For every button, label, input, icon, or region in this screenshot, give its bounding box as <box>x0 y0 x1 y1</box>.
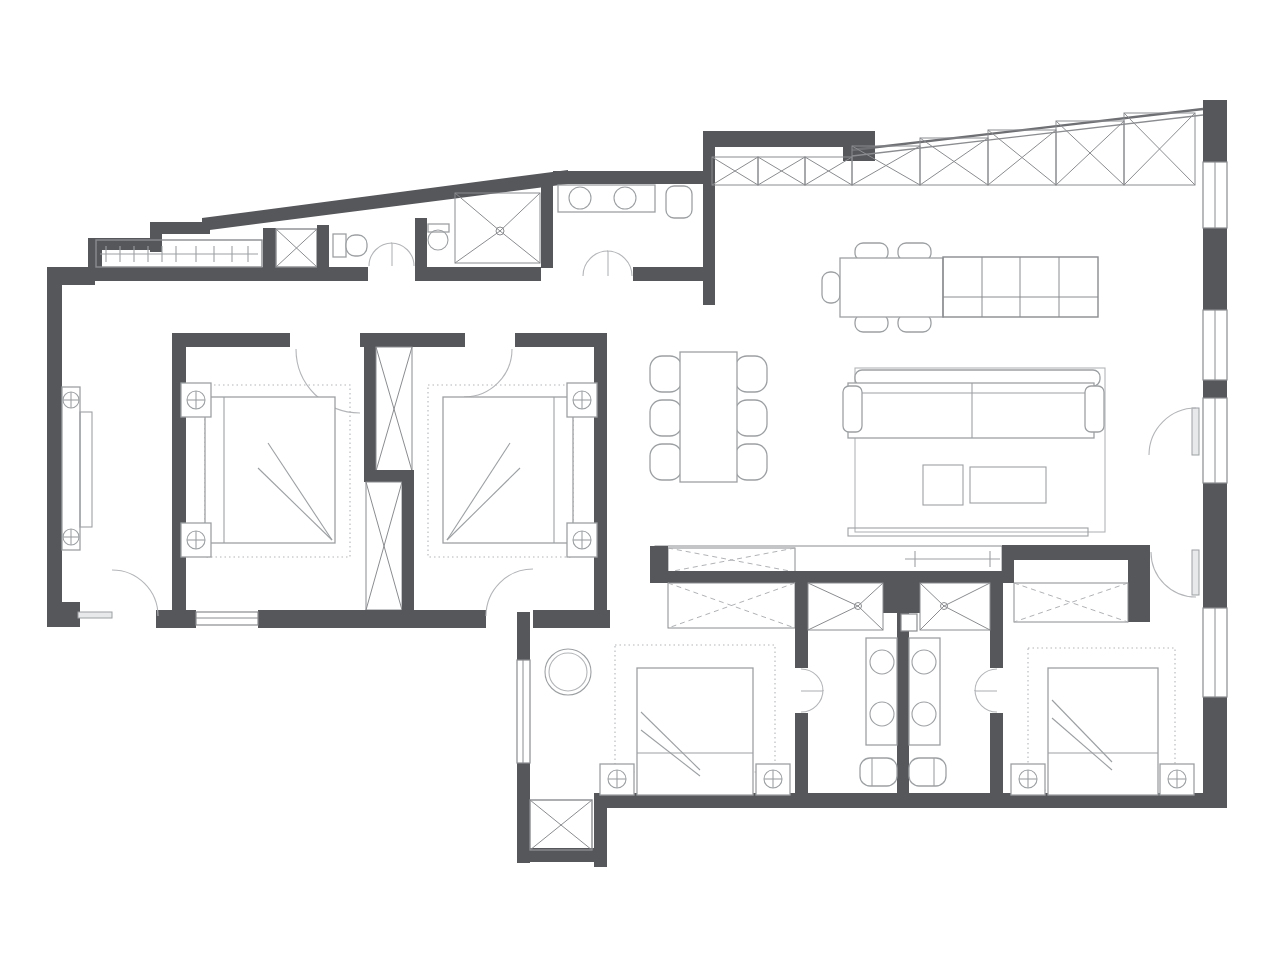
blb-nightstand-left <box>600 764 634 795</box>
dining-set <box>650 352 767 482</box>
sofa-arm-right <box>1085 386 1104 432</box>
center-niche <box>901 614 917 631</box>
wall-topbath-east <box>703 131 715 273</box>
pier-right-4 <box>1203 483 1227 608</box>
sideboard-lamp-bottom <box>63 529 79 545</box>
wall-shower-east <box>541 178 553 268</box>
millwork-wardrobe-cell <box>668 548 795 572</box>
wardrobe-lower <box>366 482 402 610</box>
pier-right-5 <box>1203 697 1227 808</box>
wall-brbr-jamb <box>1128 545 1150 622</box>
sofa-arm-left <box>843 386 862 432</box>
door-arc-bedroom-2 <box>464 349 512 397</box>
shower-room <box>428 193 540 263</box>
blb-bed <box>637 668 753 795</box>
dining-chairs-right <box>735 356 767 480</box>
window-right-4 <box>1203 608 1227 697</box>
sofa <box>843 370 1104 438</box>
window-right-1 <box>1203 162 1227 228</box>
wall-sloped-right-inner <box>852 115 1203 156</box>
kitchen-island-group <box>822 243 1098 332</box>
vanity-left <box>866 638 897 745</box>
wc-toilet-bowl <box>346 235 367 256</box>
b1-nightstand-bottom <box>181 523 211 557</box>
coffee-table-small <box>923 465 963 505</box>
blb-nightstand-right <box>756 764 790 795</box>
window-right-2 <box>1203 310 1227 380</box>
wall-corridor-join <box>1002 545 1014 583</box>
pier-sw-corner <box>47 602 80 627</box>
shower-left <box>808 583 883 630</box>
wc-toilet-tank <box>333 234 346 257</box>
bathrooms-bottom <box>795 580 1003 794</box>
basin-shelf <box>428 224 449 232</box>
vanity-counter <box>558 185 655 212</box>
wall-b2-north-b <box>515 333 607 347</box>
wall-b1-north <box>172 333 290 347</box>
wall-wc-bottom <box>330 610 415 628</box>
wall-center-divider <box>897 613 909 794</box>
dining-table <box>680 352 737 482</box>
wall-blbr-west-top <box>517 612 530 660</box>
bedroom-bottom-right <box>1011 648 1194 795</box>
wall-bathL-west-top <box>795 583 808 668</box>
wc-double-door <box>369 243 414 266</box>
window-right-3 <box>1203 398 1227 483</box>
wall-b2-east <box>594 333 607 628</box>
shower-right <box>920 583 990 630</box>
bedroom-1 <box>172 333 360 627</box>
wall-wc-left <box>364 345 376 477</box>
round-armchair <box>545 649 591 695</box>
wall-entry-south-b <box>415 267 541 281</box>
pier-ne-corner <box>1203 100 1227 162</box>
door-arc-bottom-left-bedroom <box>486 569 533 616</box>
dining-chairs-left <box>650 356 682 480</box>
window-bottom-left-bedroom <box>517 660 530 763</box>
wall-wc-east <box>415 218 427 268</box>
brb-bed <box>1048 668 1158 795</box>
wall-entry-south-a <box>62 267 368 281</box>
wall-basin <box>428 230 448 250</box>
brb-nightstand-left <box>1011 764 1045 795</box>
toilet-left <box>860 758 897 786</box>
wall-sloped-left <box>202 170 568 231</box>
wall-topbath-north <box>553 171 713 184</box>
wall-kitchen-top <box>703 131 855 147</box>
wall-brbr-north <box>1002 545 1150 560</box>
b2-nightstand-top <box>567 383 597 417</box>
b1-nightstand-top <box>181 383 211 417</box>
brb-nightstand-right <box>1160 764 1194 795</box>
topbath-double-door <box>583 251 632 276</box>
window-south-1 <box>196 612 258 625</box>
b2-nightstand-bottom <box>567 523 597 557</box>
vanity-right <box>909 638 940 745</box>
wall-b1-west <box>172 333 186 627</box>
wall-shaft-left <box>263 228 276 268</box>
utility-shaft <box>276 229 317 267</box>
sideboard-front <box>80 412 92 527</box>
wall-bathR-east-top <box>990 583 1003 668</box>
bedroom-bottom-left <box>545 645 790 795</box>
toilet <box>666 186 692 218</box>
round-armchair-inner <box>549 653 587 691</box>
wall-ac-right <box>594 793 607 867</box>
hanging-rail <box>905 551 1000 567</box>
entry-door <box>78 570 158 618</box>
pier-right-3 <box>1203 380 1227 398</box>
wall-bathL-west-bot <box>795 713 808 794</box>
wall-wc-top <box>360 333 422 347</box>
wardrobe-upper <box>376 347 412 471</box>
coffee-table-large <box>970 467 1046 503</box>
sideboard-lamp-top <box>63 392 79 408</box>
wall-corridor-long <box>650 571 1014 583</box>
wall-entry-south-c <box>633 267 713 281</box>
bathR-double-door <box>975 669 997 712</box>
cabinet-cells-right <box>852 113 1195 185</box>
toilet-right <box>909 758 946 786</box>
wardrobe-bottom-right <box>1014 583 1128 622</box>
balcony-door <box>1149 408 1199 455</box>
stool-left <box>822 272 840 303</box>
floor-plan-canvas <box>0 0 1280 960</box>
living-room <box>843 368 1105 536</box>
guest-wc <box>333 234 367 257</box>
bathL-double-door <box>801 669 823 712</box>
ac-platform <box>530 800 592 850</box>
wall-step2 <box>150 222 210 234</box>
wall-b2-north-a <box>414 333 465 347</box>
wall-center-pillar <box>883 580 920 613</box>
top-bathroom <box>558 131 715 273</box>
wardrobe-column <box>330 333 422 628</box>
wardrobe-bottom-left <box>668 583 795 628</box>
sofa-seat <box>848 383 1094 438</box>
sideboard-body <box>62 387 80 550</box>
wall-shaft-right <box>317 225 329 268</box>
west-sideboard <box>62 387 92 550</box>
wall-wc-right <box>402 475 414 615</box>
cabinet-cells-left <box>712 157 852 185</box>
bedroom-2 <box>414 333 607 628</box>
bottom-right-bedroom-door <box>1151 550 1199 597</box>
kitchen-table <box>840 258 943 317</box>
wall-left <box>47 267 62 627</box>
floor-plan-drawing <box>0 0 1280 960</box>
pier-right-2 <box>1203 228 1227 310</box>
wall-bathR-east-bot <box>990 713 1003 794</box>
pier-south-3 <box>410 610 486 628</box>
kitchen-island <box>943 257 1098 317</box>
